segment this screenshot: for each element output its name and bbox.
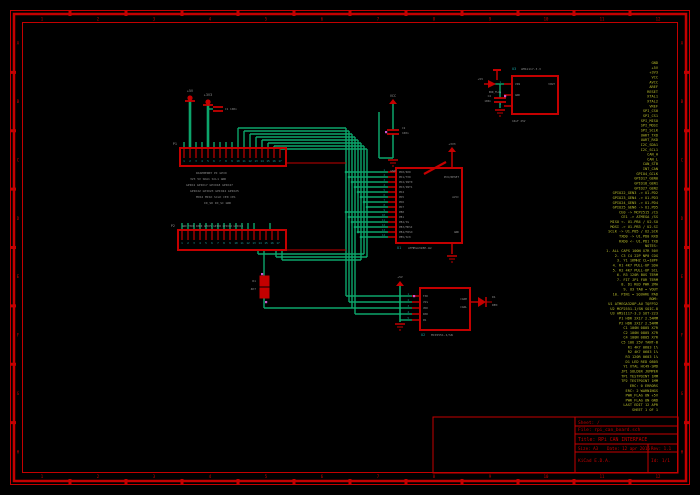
note-line: MISO <- U1.PB4 / U2.SO bbox=[610, 220, 658, 224]
junction-dot bbox=[366, 206, 369, 209]
note-line: P1 HDR 2X17 2.54MM bbox=[619, 316, 659, 320]
pin-number: 10 bbox=[382, 213, 386, 217]
schematic-label: GND bbox=[454, 230, 459, 234]
note-line: 10. PIN1 = SQUARE PAD bbox=[613, 292, 658, 296]
note-line: JP1 SOLDER JUMPER bbox=[621, 369, 659, 373]
schematic-label: PC6/RESET bbox=[444, 175, 459, 179]
pin-number: 10 bbox=[236, 159, 240, 163]
schematic-label: P2 bbox=[171, 224, 175, 228]
erc-marker bbox=[261, 273, 263, 275]
junction-dot bbox=[357, 191, 360, 194]
schematic-label: 4K7 bbox=[251, 287, 257, 291]
note-line: 3. Y1 16MHZ CL=18PF bbox=[617, 259, 658, 263]
note-line: XTAL2 bbox=[647, 100, 658, 104]
note-line: 5. R2 4K7 PULL-UP SCL bbox=[613, 268, 658, 272]
title-block-text: File: rpi_can_board.sch bbox=[578, 427, 641, 433]
schematic-label: PB0 bbox=[399, 210, 404, 214]
note-line: R1 4K7 0603 1% bbox=[628, 345, 659, 349]
note-line: CAN_H bbox=[647, 153, 658, 157]
pin-number: 14 bbox=[260, 159, 264, 163]
pin-number: 15 bbox=[266, 159, 270, 163]
junction-dot bbox=[360, 236, 363, 239]
erc-marker bbox=[504, 95, 506, 97]
schematic-page: 112233445566778899101011111212AABBCCDDEE… bbox=[0, 0, 700, 495]
note-line: INT_CAN bbox=[643, 167, 658, 171]
note-line: 7. FIT JP1 FOR TERM bbox=[617, 278, 659, 282]
erc-marker bbox=[265, 301, 267, 303]
schematic-label: PD5 bbox=[399, 195, 404, 199]
pin-number: 16 bbox=[272, 159, 276, 163]
note-line: U2 MCP2551-I/SN SOIC-8 bbox=[610, 307, 658, 311]
note-line: ERC: 0 ERRORS bbox=[630, 384, 658, 388]
pin-number: 13 bbox=[382, 228, 386, 232]
note-line: UART_RXD bbox=[641, 138, 658, 142]
schematic-label: AMS1117-3.3 bbox=[521, 67, 541, 71]
junction-dot bbox=[345, 211, 348, 214]
note-line: 8. D1 RED PWR 2MA bbox=[621, 283, 659, 287]
pin-number: 14 bbox=[382, 233, 386, 237]
schematic-label: RASPBERRY PI GPIO bbox=[196, 171, 227, 175]
schematic-label: ATMEGA328P-AU bbox=[408, 246, 432, 250]
note-line: ERC: 2 WARNINGS bbox=[626, 389, 658, 393]
note-line: C4 100N 0805 X7R bbox=[623, 336, 658, 340]
note-line: I2C_SDA1 bbox=[641, 143, 658, 147]
note-line: 2. C3 C4 22P NP0 COG bbox=[615, 254, 658, 258]
note-line: GPIO27_GEN2 bbox=[634, 186, 658, 190]
note-line: TXD0 -> U1.PD0 RXD bbox=[619, 235, 658, 239]
note-line: AVCC bbox=[649, 80, 658, 84]
pin-number: 15 bbox=[264, 241, 268, 245]
schematic-label: ID_SD ID_SC GND bbox=[204, 201, 231, 205]
schematic-label: PB3/MOSI bbox=[399, 225, 413, 229]
frame-col-label: 11 bbox=[600, 474, 605, 479]
pin-number: 11 bbox=[240, 241, 244, 245]
note-line: R2 4K7 0603 1% bbox=[628, 350, 659, 354]
frame-col-label: 12 bbox=[656, 474, 661, 479]
schematic-label: +5V bbox=[478, 77, 484, 81]
note-line: C2 100N 0805 X7R bbox=[623, 331, 658, 335]
note-line: TP1 TESTPOINT 1MM bbox=[621, 374, 659, 378]
note-line: GPIO23_GEN4 -> U1.PD3 bbox=[613, 196, 658, 200]
pin-number: 11 bbox=[382, 218, 386, 222]
pin-number: 14 bbox=[258, 241, 262, 245]
schematic-label: RS bbox=[423, 318, 427, 322]
pin-number: 13 bbox=[254, 159, 258, 163]
schematic-label: PD4 bbox=[399, 190, 404, 194]
schematic-label: 100n bbox=[402, 131, 409, 135]
schematic-label: PB2/SS bbox=[399, 220, 409, 224]
schematic-label: GND TXD0 RXD0 GPIO5 GPIO6 GPIO12 GPIO13 bbox=[182, 224, 243, 228]
title-block-text: Title: RPi CAN INTERFACE bbox=[578, 437, 647, 443]
note-line: NOTES: bbox=[645, 244, 658, 248]
title-block-text: Date: 12 apr 2016 bbox=[607, 446, 650, 451]
note-line: R3 120R 0603 1% bbox=[626, 355, 659, 359]
note-line: SPI_SCLK bbox=[641, 128, 659, 132]
schematic-label: 100n bbox=[484, 99, 491, 103]
note-line: D1 LED RED 0805 bbox=[626, 360, 658, 364]
schematic-label: GPIO4 GPIO17 GPIO18 GPIO27 bbox=[186, 183, 233, 187]
note-line: PWR_FLAG ON +5V bbox=[626, 394, 659, 398]
note-line: GPIO4_GCLK bbox=[636, 172, 658, 176]
pin-number: 17 bbox=[278, 159, 282, 163]
note-line: TP2 TESTPOINT 1MM bbox=[621, 379, 659, 383]
schematic-label: RED bbox=[492, 303, 498, 307]
note-line: CE0 -> MCP2515 /CS bbox=[619, 210, 658, 214]
note-line: RESET bbox=[647, 90, 659, 94]
schematic-label: PB5/SCK bbox=[399, 235, 411, 239]
schematic-label: 3V3 5V SDA1 SCL1 GND bbox=[190, 177, 226, 181]
frame-col-label: 10 bbox=[544, 474, 549, 479]
junction-dot bbox=[399, 295, 402, 298]
schematic-label: +5V bbox=[187, 89, 194, 93]
note-line: 6. R3 120R BUS TERM bbox=[617, 273, 659, 277]
schematic-label: PD7 bbox=[399, 205, 404, 209]
pin-number: 12 bbox=[382, 223, 386, 227]
note-line: UART_TXD bbox=[641, 133, 658, 137]
frame-col-label: 12 bbox=[656, 17, 661, 22]
schematic-label: PB1 bbox=[399, 215, 404, 219]
schematic-label: AVCC bbox=[452, 195, 459, 199]
schematic-label: GND bbox=[390, 169, 396, 173]
junction-dot bbox=[360, 196, 363, 199]
schematic-label: PB4/MISO bbox=[399, 230, 413, 234]
schematic-label: MOSI MISO SCLK CE0 CE1 bbox=[196, 195, 236, 199]
schematic-label: PD3/INT1 bbox=[399, 185, 413, 189]
junction-dot bbox=[351, 221, 354, 224]
schematic-label: D1 bbox=[492, 295, 496, 299]
note-line: AREF bbox=[649, 85, 658, 89]
note-line: 1. ALL CAPS 100N X7R 50V bbox=[606, 249, 659, 253]
title-block-text: Sheet: / bbox=[578, 420, 600, 426]
note-line: GPIO17_GEN0 bbox=[634, 177, 658, 181]
junction-dot bbox=[354, 186, 357, 189]
note-line: 9. U3 TAB = VOUT bbox=[623, 288, 658, 292]
note-line: LAST EDIT 12 APR bbox=[623, 403, 658, 407]
erc-marker bbox=[413, 295, 415, 297]
note-line: VCC bbox=[652, 75, 659, 79]
junction-dot bbox=[399, 313, 402, 316]
junction-dot bbox=[399, 307, 402, 310]
schematic-label: +5V bbox=[397, 275, 403, 279]
pin-number: 13 bbox=[252, 241, 256, 245]
note-line: +5V bbox=[652, 66, 659, 70]
frame-col-label: 11 bbox=[600, 17, 605, 22]
schematic-label: U3 bbox=[512, 67, 516, 71]
title-block-text: KiCad E.D.A. bbox=[578, 458, 611, 464]
erc-marker bbox=[385, 131, 387, 133]
junction-dot bbox=[348, 176, 351, 179]
schematic-label: GPIO22 GPIO23 GPIO24 GPIO25 bbox=[190, 189, 239, 193]
note-line: RXD0 <- U1.PD1 TXD bbox=[619, 239, 658, 243]
junction-dot bbox=[399, 301, 402, 304]
schematic-label: C2 bbox=[402, 126, 406, 130]
note-line: SPI_MISO bbox=[641, 119, 658, 123]
note-line: PWR_FLAG ON GND bbox=[626, 398, 658, 402]
note-line: GND bbox=[652, 61, 659, 65]
junction-dot bbox=[348, 216, 351, 219]
note-line: 4. R1 4K7 PULL-UP SDA bbox=[613, 263, 659, 267]
pin-number: 16 bbox=[270, 241, 274, 245]
schematic-label: VIN bbox=[515, 82, 520, 86]
schematic-label: RXD bbox=[423, 312, 428, 316]
schematic-label: MCP2551-I/SN bbox=[431, 333, 453, 337]
note-line: GPIO24_GEN5 -> U1.PD4 bbox=[613, 201, 658, 205]
note-line: CAN_STB bbox=[643, 162, 658, 166]
title-block-text: Id: 1/1 bbox=[651, 458, 670, 464]
note-line: SPI_CS1 bbox=[643, 114, 658, 118]
schematic-canvas: 112233445566778899101011111212AABBCCDDEE… bbox=[0, 0, 700, 495]
note-line: BOM: bbox=[649, 297, 658, 301]
junction-dot bbox=[354, 226, 357, 229]
schematic-label: PD0/RXD bbox=[399, 170, 411, 174]
note-line: MOSI -> U1.PB3 / U2.SI bbox=[610, 225, 658, 229]
schematic-label: TXD bbox=[423, 294, 428, 298]
pin-number: 11 bbox=[242, 159, 246, 163]
junction-dot bbox=[345, 171, 348, 174]
note-line: CE1 -> ATMEGA /SS bbox=[621, 215, 658, 219]
note-line: I2C_SCL1 bbox=[641, 148, 658, 152]
pin-number: 12 bbox=[246, 241, 250, 245]
note-line: SPI_MOSI bbox=[641, 124, 658, 128]
note-line: Y1 XTAL HC49-SMD bbox=[623, 365, 658, 369]
schematic-label: VOUT bbox=[548, 82, 555, 86]
pin-number: 10 bbox=[234, 241, 238, 245]
note-line: VREF bbox=[649, 104, 658, 108]
schematic-label: +3V3 bbox=[204, 93, 212, 97]
schematic-label: VDD bbox=[423, 306, 428, 310]
note-line: U1 ATMEGA328P-AU TQFP32 bbox=[608, 302, 658, 306]
schematic-label: GND bbox=[515, 93, 520, 97]
note-line: SHEET 1 OF 1 bbox=[632, 408, 658, 412]
note-line: GPIO25_GEN6 -> U1.PD5 bbox=[613, 206, 658, 210]
schematic-label: P1 bbox=[173, 142, 177, 146]
schematic-label: CANH bbox=[460, 297, 467, 301]
note-line: P2 HDR 2X17 2.54MM bbox=[619, 321, 659, 325]
component-outline bbox=[260, 276, 269, 286]
frame-col-label: 10 bbox=[544, 17, 549, 22]
junction-dot bbox=[357, 231, 360, 234]
title-block-text: Rev: 1.1 bbox=[651, 446, 672, 451]
note-line: C1 100N 0805 X7R bbox=[623, 326, 658, 330]
pin-number: 17 bbox=[276, 241, 280, 245]
note-line: CAN_L bbox=[647, 157, 658, 161]
schematic-label: CANL bbox=[460, 305, 467, 309]
title-block-text: Size: A3 bbox=[578, 446, 599, 451]
power-symbol bbox=[205, 99, 210, 104]
power-symbol bbox=[187, 95, 192, 100]
note-line: C5 10U 25V TANT-B bbox=[621, 341, 658, 345]
component-outline bbox=[260, 288, 269, 298]
note-line: XTAL1 bbox=[647, 95, 658, 99]
schematic-label: R1 bbox=[252, 279, 256, 283]
schematic-label: +3V3 bbox=[448, 142, 455, 146]
schematic-label: U1 bbox=[397, 246, 401, 250]
note-line: SCLK -> U1.PB5 / U2.SCK bbox=[608, 230, 659, 234]
note-line: SPI_CS0 bbox=[643, 109, 658, 113]
junction-dot bbox=[351, 181, 354, 184]
schematic-label: C1 100n bbox=[225, 107, 237, 111]
note-line: GPIO22_GEN3 -> U1.PD2 bbox=[613, 191, 658, 195]
note-line: GPIO18_GEN1 bbox=[634, 182, 658, 186]
schematic-label: PD1/TXD bbox=[399, 175, 411, 179]
note-line: +3V3 bbox=[649, 71, 658, 75]
junction-dot bbox=[363, 201, 366, 204]
note-line: U3 AMS1117-3.3 SOT-223 bbox=[610, 312, 658, 316]
schematic-label: PD6 bbox=[399, 200, 404, 204]
schematic-label: U2 bbox=[421, 333, 425, 337]
schematic-label: PD2/INT0 bbox=[399, 180, 413, 184]
schematic-label: VSS bbox=[423, 300, 428, 304]
pin-number: 12 bbox=[248, 159, 252, 163]
schematic-label: 10uF 25V bbox=[512, 119, 526, 123]
schematic-label: C4 bbox=[488, 94, 492, 98]
schematic-label: VCC bbox=[390, 94, 396, 98]
